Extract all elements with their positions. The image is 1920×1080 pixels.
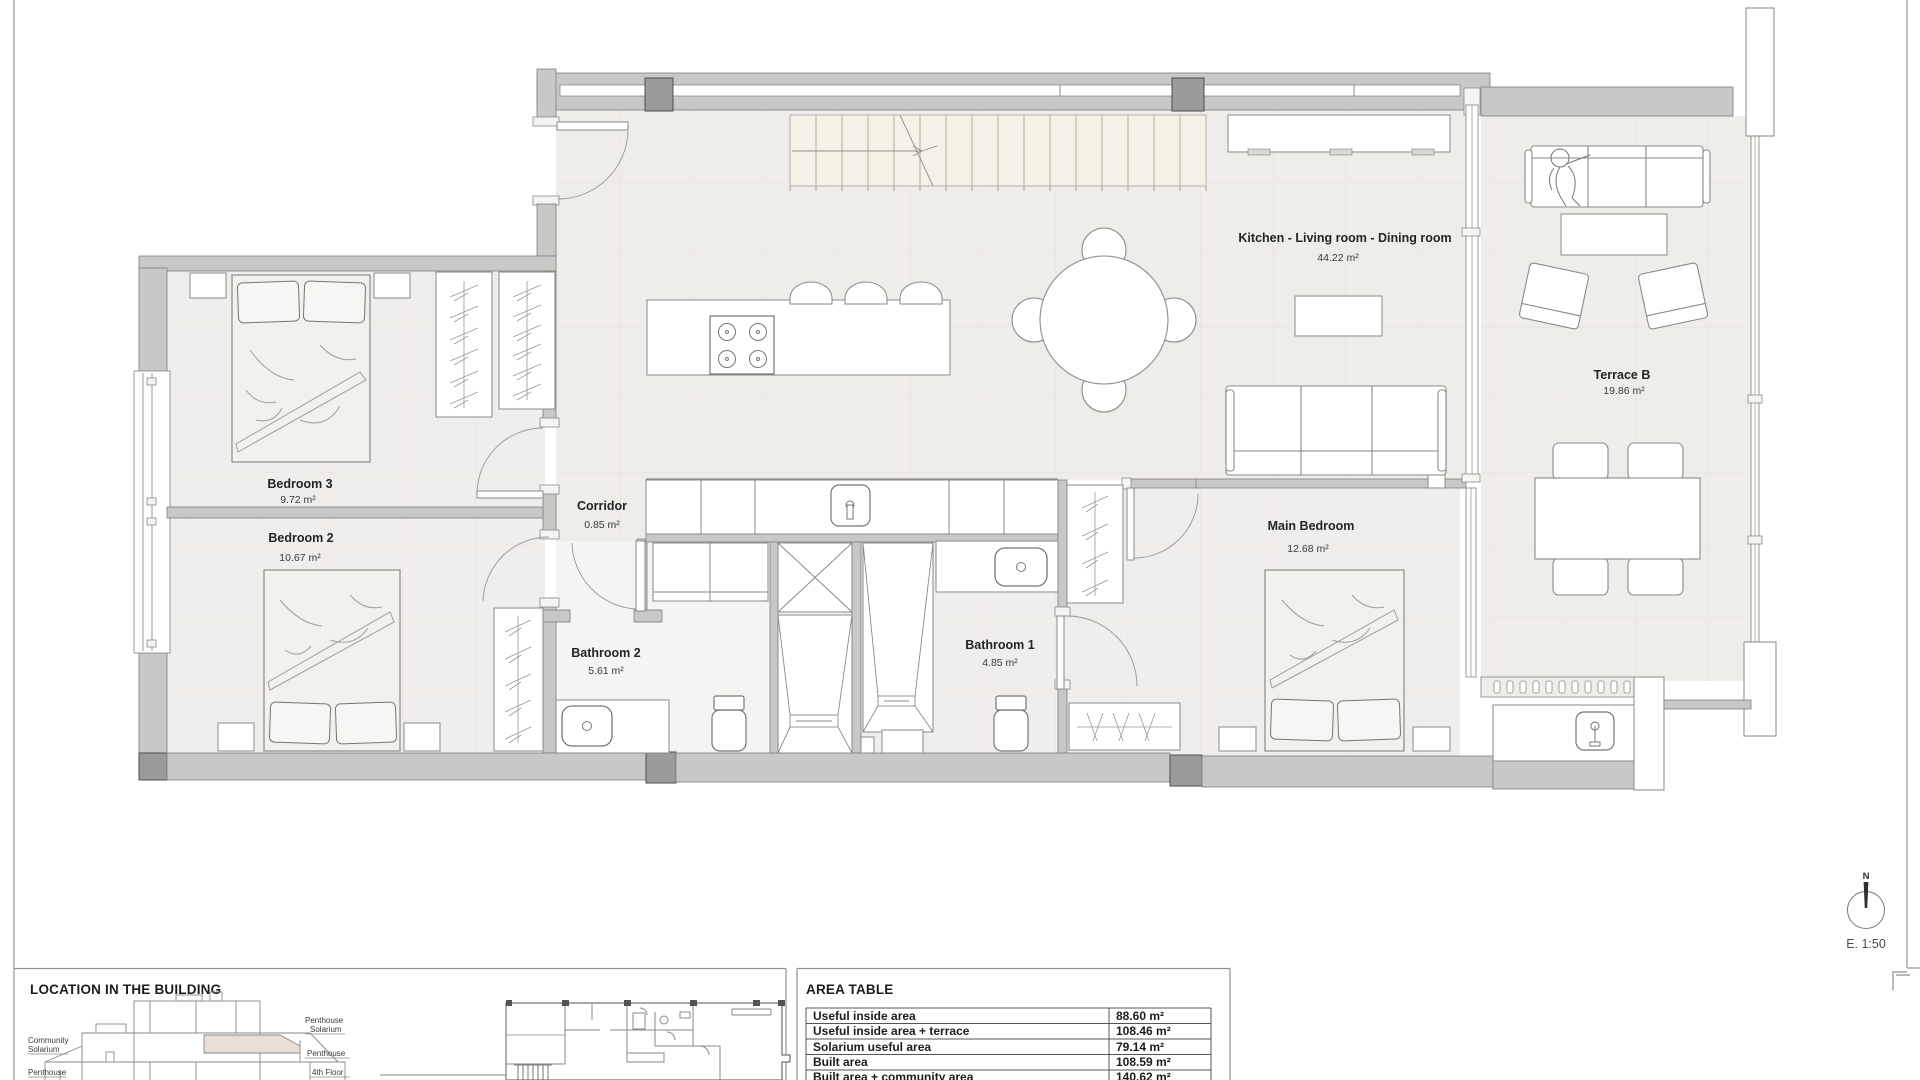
svg-text:5.61 m²: 5.61 m² [588,665,624,677]
svg-text:Solarium: Solarium [28,1045,60,1054]
svg-text:Main Bedroom: Main Bedroom [1268,519,1355,533]
svg-text:10.67 m²: 10.67 m² [279,552,321,564]
svg-text:88.60 m²: 88.60 m² [1116,1009,1164,1023]
svg-text:Useful inside area + terrace: Useful inside area + terrace [813,1024,970,1038]
svg-text:Bathroom 2: Bathroom 2 [571,646,641,660]
svg-text:Kitchen - Living room - Dining: Kitchen - Living room - Dining room [1238,231,1451,245]
svg-text:4th Floor: 4th Floor [312,1068,344,1077]
svg-text:140.62 m²: 140.62 m² [1116,1070,1171,1080]
svg-text:0.85 m²: 0.85 m² [584,519,620,531]
svg-text:12.68 m²: 12.68 m² [1287,543,1329,555]
svg-text:AREA TABLE: AREA TABLE [806,982,894,997]
svg-text:Penthouse: Penthouse [28,1068,67,1077]
svg-text:Corridor: Corridor [577,499,627,513]
svg-text:Penthouse: Penthouse [305,1016,344,1025]
svg-text:E. 1:50: E. 1:50 [1846,937,1886,951]
svg-text:Useful inside area: Useful inside area [813,1009,916,1023]
svg-text:Community: Community [28,1036,68,1045]
svg-text:44.22 m²: 44.22 m² [1317,252,1359,264]
svg-text:Bedroom 3: Bedroom 3 [267,477,332,491]
svg-text:9.72 m²: 9.72 m² [280,494,316,506]
svg-text:108.46 m²: 108.46 m² [1116,1024,1171,1038]
svg-text:Solarium: Solarium [310,1025,342,1034]
svg-text:108.59 m²: 108.59 m² [1116,1055,1171,1069]
svg-text:Built area + community area: Built area + community area [813,1070,974,1080]
svg-text:Bathroom 1: Bathroom 1 [965,638,1035,652]
svg-text:4.85 m²: 4.85 m² [982,657,1018,669]
svg-text:Solarium useful area: Solarium useful area [813,1040,931,1054]
svg-text:19.86 m²: 19.86 m² [1603,385,1645,397]
svg-text:N: N [1863,871,1870,882]
svg-text:Bedroom 2: Bedroom 2 [268,531,333,545]
svg-text:79.14 m²: 79.14 m² [1116,1040,1164,1054]
svg-text:Terrace B: Terrace B [1594,368,1651,382]
svg-text:Built area: Built area [813,1055,868,1069]
svg-text:Penthouse: Penthouse [307,1049,346,1058]
